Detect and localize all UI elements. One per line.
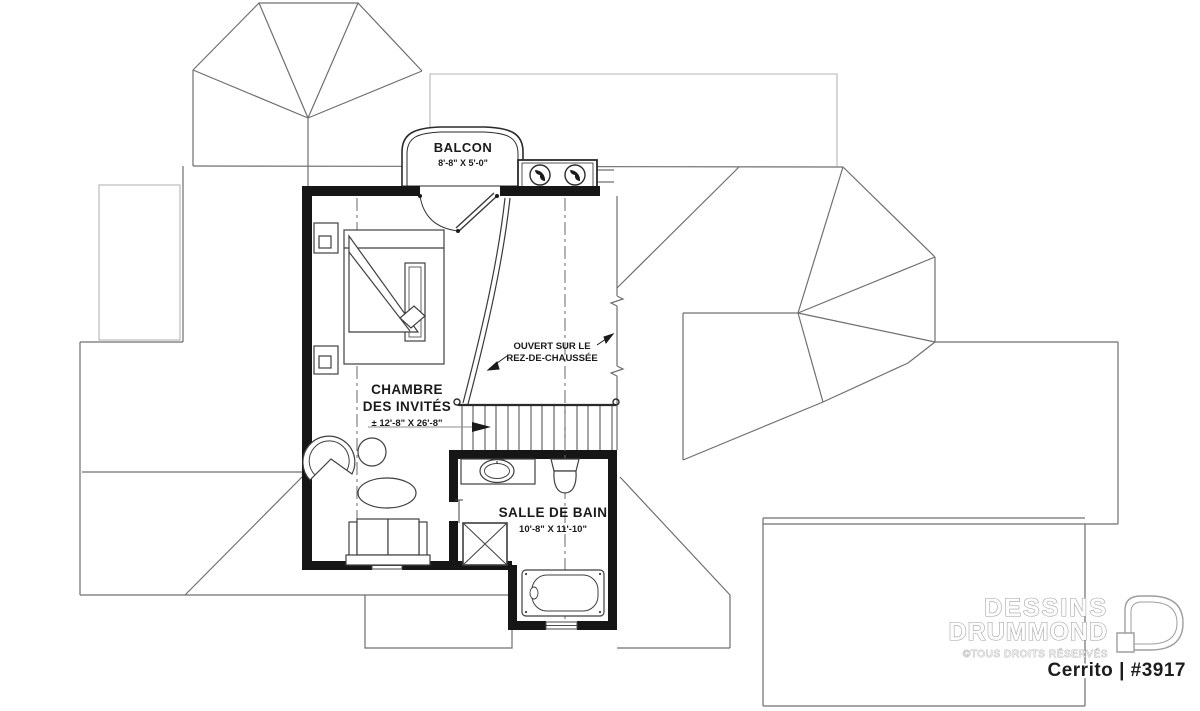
vanity-sink xyxy=(461,459,535,484)
chimney xyxy=(518,160,597,190)
wall-partition-upper xyxy=(449,450,458,502)
wall-right xyxy=(608,450,617,630)
floor-plan-svg: BALCON 8'-8" X 5'-0" xyxy=(0,0,1200,711)
guest-room-label-2: DES INVITÉS xyxy=(363,399,451,414)
wall-alcove-bottom-a xyxy=(508,621,546,630)
open-area-leader-arrows xyxy=(488,334,613,370)
floor-plan-page: BALCON 8'-8" X 5'-0" xyxy=(0,0,1200,711)
handrail-curl-left xyxy=(454,399,460,405)
sofa xyxy=(346,519,430,565)
bathroom-label: SALLE DE BAIN xyxy=(499,505,608,520)
bathtub xyxy=(522,570,604,616)
wall-top-a xyxy=(302,186,420,196)
bed xyxy=(344,230,444,364)
plan-name: Cerrito | #3917 xyxy=(1048,660,1187,681)
wall-top-b xyxy=(500,186,600,196)
chimney-flue-icon xyxy=(530,165,550,185)
curved-railing xyxy=(463,198,510,404)
guest-room-label-1: CHAMBRE xyxy=(371,382,443,397)
bathroom-dims: 10'-8" X 11'-10" xyxy=(519,524,587,535)
armchair xyxy=(303,436,355,480)
wall-alcove-left xyxy=(508,565,517,625)
wall-left xyxy=(302,186,312,570)
branding-block: DESSINS DRUMMOND ©TOUS DROITS RÉSERVÉS C… xyxy=(949,594,1186,681)
open-area-label-1: OUVERT SUR LE xyxy=(513,341,590,352)
ghost-left-rect xyxy=(99,185,180,340)
brand-name-line2: DRUMMOND xyxy=(949,618,1108,646)
balcony-door xyxy=(418,193,499,233)
open-area-label-2: REZ-DE-CHAUSSÉE xyxy=(506,353,597,364)
rights-notice: ©TOUS DROITS RÉSERVÉS xyxy=(963,647,1108,660)
turret-roof-left xyxy=(193,3,422,186)
guest-room-dims: ± 12'-8" X 26'-8" xyxy=(371,418,442,429)
hip-roof-right xyxy=(617,167,935,460)
toilet xyxy=(551,459,579,493)
chimney-flue-icon xyxy=(565,165,585,185)
door-swing-arc xyxy=(420,196,458,231)
coffee-table xyxy=(358,478,416,508)
bath-window xyxy=(546,622,577,629)
side-table xyxy=(358,438,386,466)
drummond-d-logo-icon xyxy=(1117,596,1183,652)
tub-faucet xyxy=(530,587,538,599)
nightstand xyxy=(314,346,338,374)
nightstand xyxy=(314,223,338,253)
balcony-outline xyxy=(402,127,523,186)
balcony: BALCON 8'-8" X 5'-0" xyxy=(402,127,523,186)
open-area-boundary-line xyxy=(611,196,623,450)
wall-bath-top xyxy=(455,450,617,459)
door-leaf xyxy=(456,193,497,231)
balcony-label: BALCON xyxy=(434,140,493,155)
balcony-dims: 8'-8" X 5'-0" xyxy=(438,158,488,168)
bathroom-fixtures xyxy=(455,459,604,616)
